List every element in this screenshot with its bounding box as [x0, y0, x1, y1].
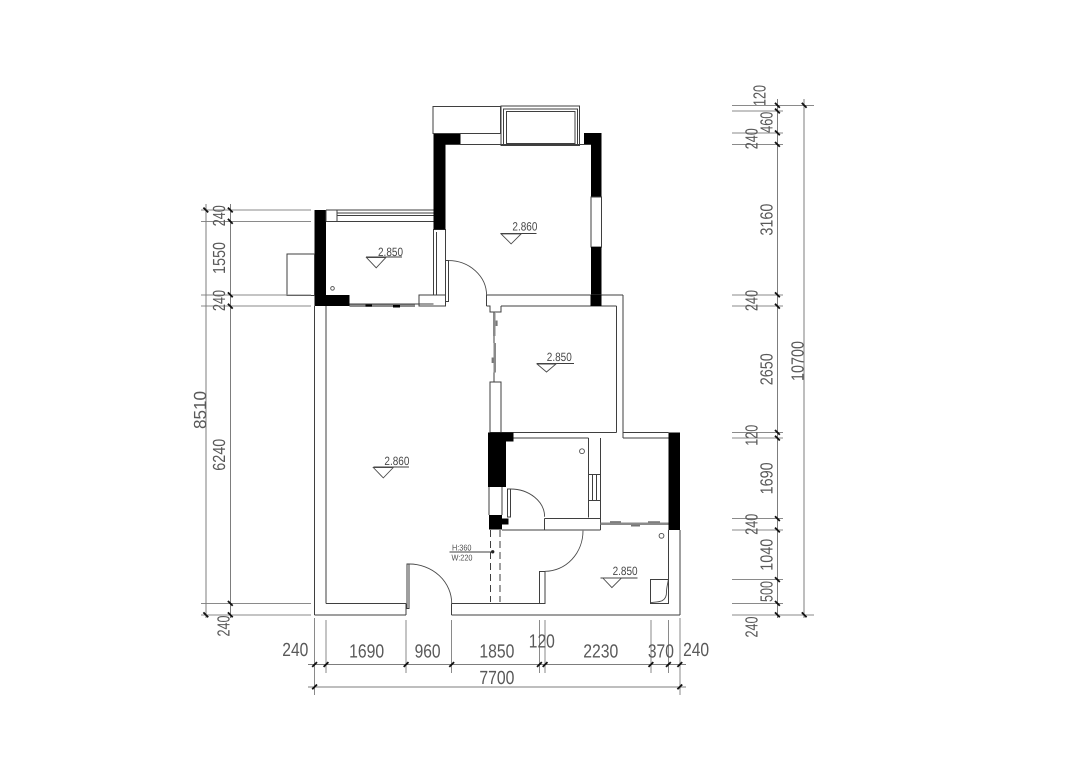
- svg-text:2.860: 2.860: [512, 219, 537, 233]
- svg-text:240: 240: [209, 205, 229, 226]
- svg-text:6240: 6240: [209, 439, 229, 471]
- svg-text:7700: 7700: [479, 668, 514, 689]
- svg-text:2.860: 2.860: [384, 454, 409, 468]
- svg-text:240: 240: [683, 640, 709, 661]
- svg-text:120: 120: [742, 425, 762, 446]
- svg-text:1690: 1690: [349, 641, 384, 662]
- svg-text:240: 240: [742, 290, 762, 311]
- svg-text:500: 500: [757, 581, 777, 602]
- svg-text:120: 120: [750, 85, 770, 106]
- svg-text:2650: 2650: [757, 353, 777, 385]
- svg-text:1690: 1690: [757, 462, 777, 494]
- svg-text:960: 960: [415, 641, 441, 662]
- svg-text:370: 370: [648, 641, 674, 662]
- svg-text:240: 240: [282, 640, 308, 661]
- svg-text:240: 240: [742, 514, 762, 535]
- svg-text:2230: 2230: [583, 641, 618, 662]
- svg-text:2.850: 2.850: [613, 564, 638, 578]
- svg-text:240: 240: [214, 615, 234, 636]
- svg-text:8510: 8510: [190, 391, 210, 429]
- svg-text:2.850: 2.850: [378, 245, 403, 259]
- svg-text:W:220: W:220: [452, 552, 473, 562]
- svg-text:10700: 10700: [788, 341, 808, 381]
- svg-text:240: 240: [209, 290, 229, 311]
- svg-text:H:360: H:360: [452, 542, 472, 552]
- svg-text:3160: 3160: [757, 203, 777, 235]
- svg-text:1550: 1550: [209, 242, 229, 274]
- svg-text:2.850: 2.850: [547, 350, 572, 364]
- svg-text:240: 240: [742, 128, 762, 149]
- svg-text:1850: 1850: [479, 641, 514, 662]
- svg-text:120: 120: [529, 631, 555, 652]
- svg-text:1040: 1040: [757, 539, 777, 571]
- svg-text:240: 240: [742, 616, 762, 637]
